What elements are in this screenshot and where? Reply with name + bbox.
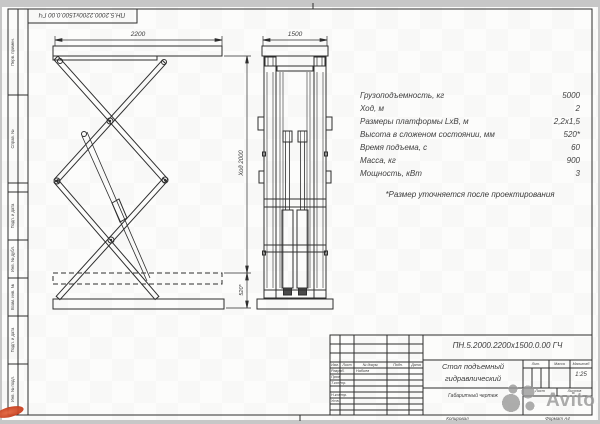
col-podp: Подп. <box>387 363 409 367</box>
spec-label: Время подъема, с <box>360 142 427 154</box>
spec-value: 520* <box>564 129 580 141</box>
row-prov: Пров. <box>331 375 341 379</box>
scissor-arm <box>54 56 168 183</box>
platform-side <box>53 46 222 56</box>
top-stamp-doc-number: ПН.5.2000.2200х1500.0.00 ГЧ <box>27 11 137 18</box>
spec-row: Время подъема, с60 <box>360 142 580 154</box>
spec-value: 5000 <box>562 90 580 102</box>
dim-label-hod-2000: Ход 2000 <box>237 133 247 193</box>
drawing-line-art <box>0 0 600 424</box>
platform-front <box>262 46 328 56</box>
spec-row: Мощность, кВт3 <box>360 168 580 180</box>
side-view <box>53 46 224 309</box>
margin-label-podp-data-1: Подп. и дата <box>9 194 17 238</box>
drawing-subtitle: Габаритный чертеж <box>423 393 523 399</box>
spec-row: Ход, м2 <box>360 103 580 115</box>
hydraulic-cylinder-side <box>82 132 151 282</box>
copied-label: Копировал <box>420 416 495 421</box>
front-view <box>257 46 333 309</box>
base-frame-front <box>257 299 333 309</box>
margin-label-podp-data-2: Подп. и дата <box>9 318 17 362</box>
margin-label-inv-podl: Инв. № подл. <box>9 367 17 411</box>
listing-photo: ПН.5.2000.2200х1500.0.00 ГЧ Перв. примен… <box>0 0 600 424</box>
spec-label: Масса, кг <box>360 155 396 167</box>
spec-label: Размеры платформы LxB, м <box>360 116 469 128</box>
lit-header: Лит. <box>523 362 549 366</box>
col-data: Дата <box>409 363 423 367</box>
right-post <box>314 57 326 298</box>
hydraulic-cylinders-front <box>282 131 308 295</box>
margin-label-sprav-no: Справ. № <box>9 117 17 161</box>
spec-label: Грузоподъемность, кг <box>360 90 444 102</box>
col-izm: Изм. <box>330 363 340 367</box>
mass-header: Масса <box>549 362 570 366</box>
pivot-joints <box>54 118 168 243</box>
spec-value: 3 <box>576 168 580 180</box>
row-tkontr: Т.контр. <box>331 381 346 385</box>
drawing-title-line1: Стол подъемный <box>423 362 523 371</box>
row-nkontr: Н.контр. <box>331 393 347 397</box>
spec-value: 60 <box>571 142 580 154</box>
pivot-bosses <box>258 117 332 255</box>
spec-row: Размеры платформы LxB, м2,2x1,5 <box>360 116 580 128</box>
margin-label-vzam-inv: Взам. инв. № <box>9 275 17 319</box>
spec-row: Высота в сложеном состоянии, мм520* <box>360 129 580 141</box>
spec-label: Высота в сложеном состоянии, мм <box>360 129 495 141</box>
margin-label-perv-primen: Перв. примен. <box>9 30 17 74</box>
spec-value: 2 <box>576 103 580 115</box>
avito-watermark-text: Avito <box>546 390 595 412</box>
row-utv: Утв. <box>331 399 340 403</box>
scale-header: Масштаб <box>570 362 592 366</box>
dim-label-520: 520* <box>237 270 247 310</box>
side-view-dimension-lines <box>55 36 251 308</box>
col-list: Лист <box>340 363 354 367</box>
left-post <box>264 57 276 298</box>
specs-footnote: *Размер уточняется после проектирования <box>360 190 580 199</box>
col-dokum: № докум. <box>354 363 387 367</box>
drawing-title-line2: гидравлический <box>423 374 523 383</box>
spec-row: Масса, кг900 <box>360 155 580 167</box>
format-label: Формат А4 <box>530 416 585 421</box>
dim-label-1500: 1500 <box>257 31 333 38</box>
spec-label: Мощность, кВт <box>360 168 422 180</box>
spec-value: 2,2x1,5 <box>554 116 580 128</box>
spec-label: Ход, м <box>360 103 384 115</box>
spec-value: 900 <box>567 155 580 167</box>
title-block-doc-number: ПН.5.2000.2200х1500.0.00 ГЧ <box>423 341 592 350</box>
scale-value: 1:25 <box>570 372 592 378</box>
designer-name: Набиев <box>356 369 369 373</box>
base-frame-side <box>53 299 224 309</box>
dim-label-2200: 2200 <box>100 31 176 38</box>
spec-row: Грузоподъемность, кг5000 <box>360 90 580 102</box>
row-razrab: Разраб. <box>331 369 345 373</box>
